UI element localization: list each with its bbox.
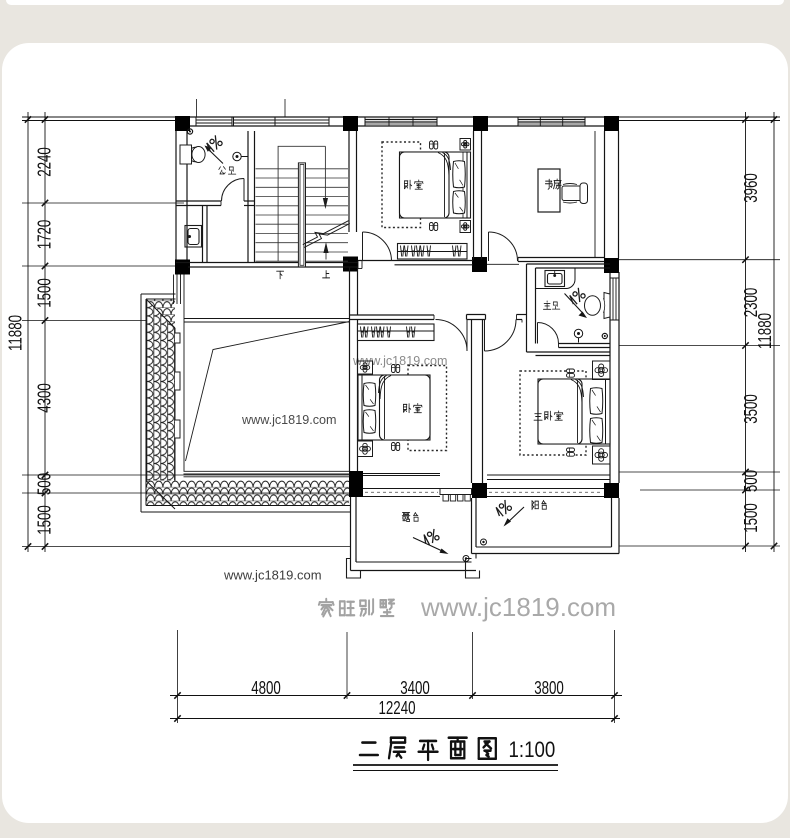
svg-text:1:100: 1:100: [509, 739, 556, 763]
svg-text:11880: 11880: [755, 313, 776, 349]
svg-text:4300: 4300: [34, 383, 55, 413]
svg-text:2300: 2300: [741, 288, 762, 318]
svg-text:12240: 12240: [378, 698, 415, 719]
svg-text:1500: 1500: [34, 278, 55, 308]
svg-text:1500: 1500: [741, 503, 762, 533]
svg-text:2240: 2240: [34, 147, 55, 177]
svg-text:www.jc1819.com: www.jc1819.com: [420, 592, 616, 622]
svg-text:www.jc1819.com: www.jc1819.com: [223, 568, 322, 583]
svg-text:11880: 11880: [5, 315, 26, 351]
svg-text:1720: 1720: [34, 220, 55, 250]
svg-text:1500: 1500: [34, 505, 55, 535]
svg-text:3960: 3960: [741, 173, 762, 203]
svg-text:4800: 4800: [251, 678, 281, 699]
svg-text:500: 500: [741, 470, 762, 492]
svg-text:3500: 3500: [741, 394, 762, 424]
svg-text:3800: 3800: [534, 678, 564, 699]
svg-text:www.jc1819.com: www.jc1819.com: [241, 413, 337, 427]
svg-text:500: 500: [34, 473, 55, 495]
svg-text:3400: 3400: [400, 678, 430, 699]
